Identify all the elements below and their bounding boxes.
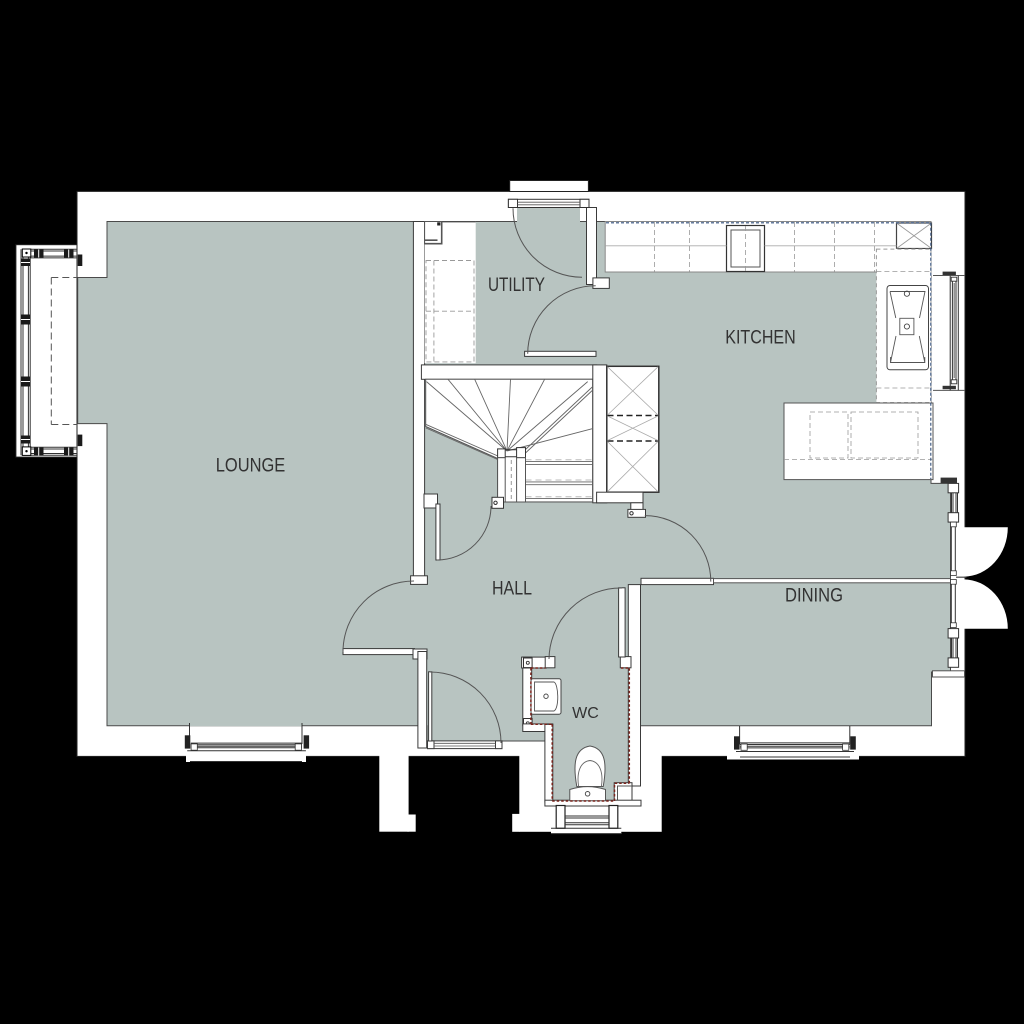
svg-text:WC: WC	[572, 705, 599, 722]
svg-text:KITCHEN: KITCHEN	[725, 328, 796, 349]
svg-text:HALL: HALL	[492, 579, 532, 600]
svg-text:DINING: DINING	[785, 586, 843, 607]
svg-text:UTILITY: UTILITY	[488, 275, 545, 296]
svg-text:LOUNGE: LOUNGE	[216, 455, 286, 476]
